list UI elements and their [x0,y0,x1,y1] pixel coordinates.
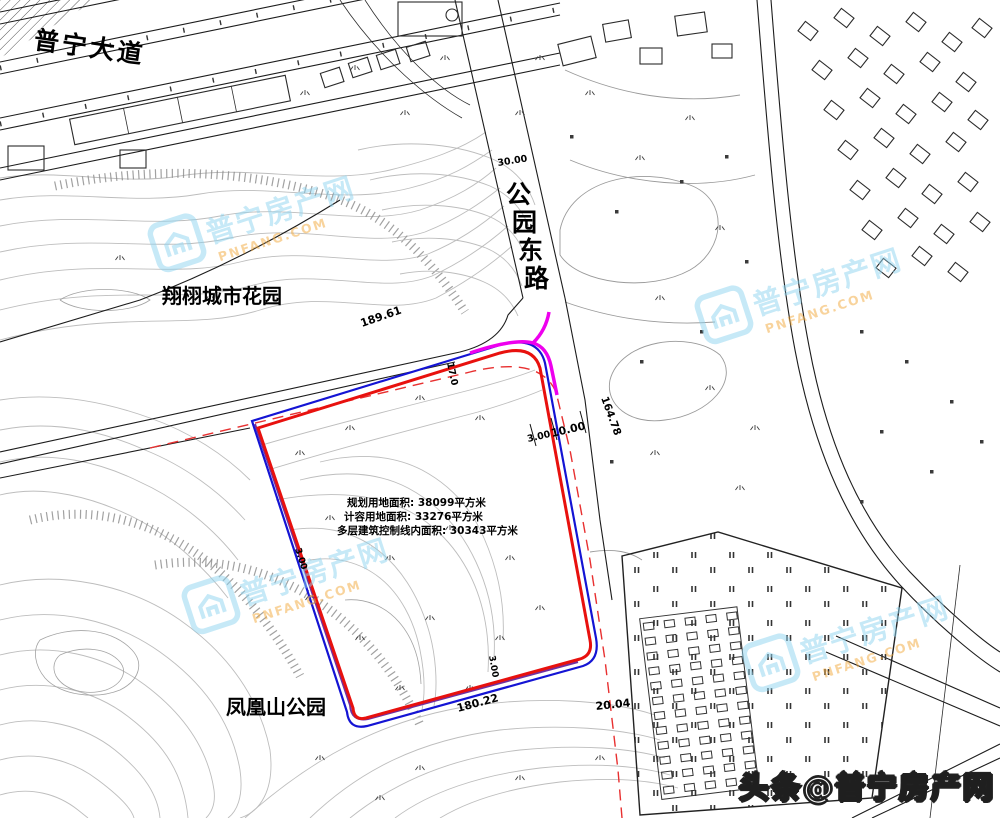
dimension-road-width: 30.00 [497,153,529,169]
site-annotation-line2: 计容用地面积: 33276平方米 [344,510,483,523]
site-annotation-line3: 多层建筑控制线内面积: 30343平方米 [337,524,518,537]
pnfang-logo-icon [695,286,753,344]
road-label-park-east-char: 路 [524,264,550,293]
dimension-east-edge: 164.78 [598,395,623,437]
dimension-top-edge: 189.61 [359,304,403,330]
boundary-magenta-hook [533,312,549,343]
dimension-southeast-edge: 20.04 [595,696,631,713]
pnfang-logo-icon [182,576,240,634]
road-label-park-east-char: 公 [506,180,531,209]
road-label-park-east-char: 东 [518,236,543,265]
road-label-puning-avenue: 普宁大道 [32,25,147,69]
dimension-south-setback: 3.00 [486,655,500,679]
place-label-city-garden: 翔栩城市花园 [161,284,282,308]
dimension-setback-3: 3.00 [526,429,552,445]
watermark-pnfang: 普宁房产网 PNFANG.COM [695,235,911,354]
site-annotation-line1: 规划用地面积: 38099平方米 [347,496,486,509]
contour-lines-layer [0,132,678,818]
terrain-outlines-layer [560,70,755,560]
place-label-phoenix-park: 凤凰山公园 [226,695,326,719]
watermark-pnfang: 普宁房产网 PNFANG.COM [182,525,398,644]
road-label-park-east-char: 园 [512,208,537,237]
planning-map: 普宁房产网 PNFANG.COM 普宁房产网 PNFANG.COM 普宁房产网 … [0,0,1000,818]
credit-banner: 头条@普宁房产网 [739,763,995,807]
planning-map-canvas: 普宁房产网 PNFANG.COM 普宁房产网 PNFANG.COM 普宁房产网 … [0,0,1000,818]
